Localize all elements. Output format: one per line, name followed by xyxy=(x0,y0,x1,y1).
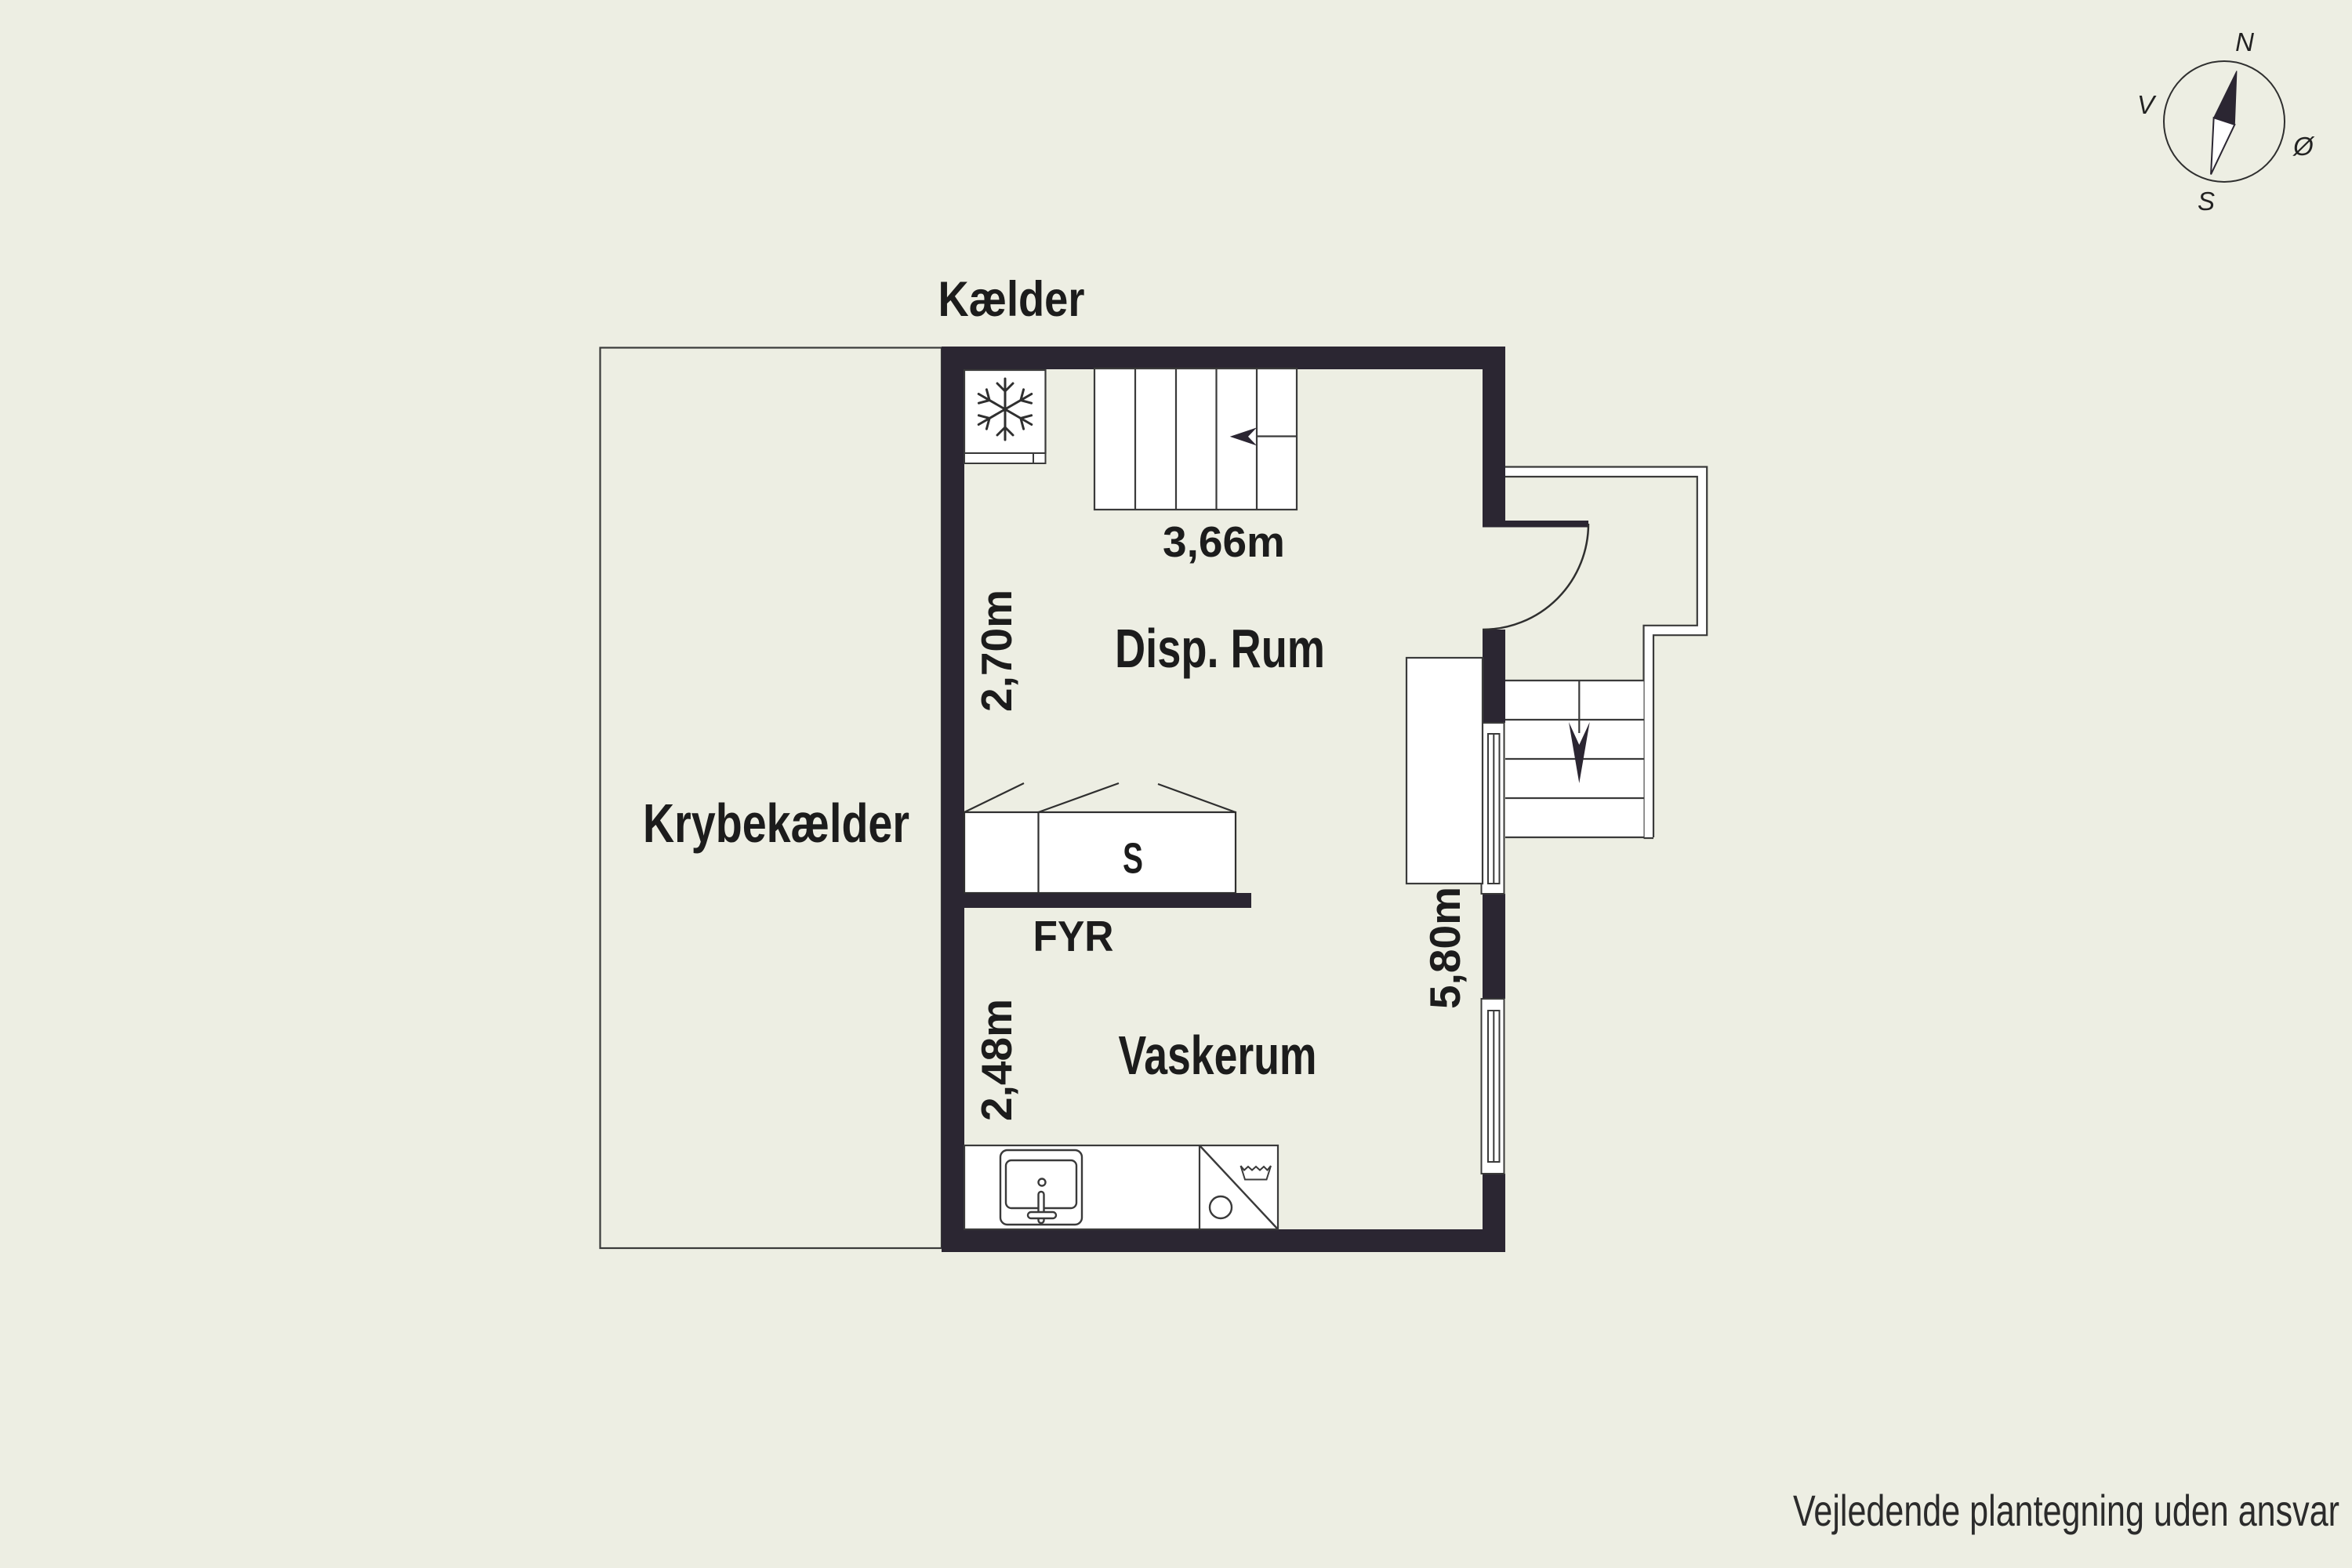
svg-text:3,66m: 3,66m xyxy=(1163,517,1285,566)
svg-text:S: S xyxy=(2198,187,2215,216)
svg-text:S: S xyxy=(1123,834,1143,883)
svg-text:Ø: Ø xyxy=(2292,132,2315,161)
svg-text:Kælder: Kælder xyxy=(938,272,1085,327)
svg-text:V: V xyxy=(2137,90,2157,119)
svg-text:5,80m: 5,80m xyxy=(1421,887,1469,1009)
svg-text:2,48m: 2,48m xyxy=(972,999,1021,1121)
svg-text:2,70m: 2,70m xyxy=(972,590,1021,712)
svg-text:N: N xyxy=(2235,27,2254,56)
svg-text:FYR: FYR xyxy=(1033,912,1114,960)
svg-text:Disp. Rum: Disp. Rum xyxy=(1115,618,1325,679)
svg-text:Vejledende plantegning uden an: Vejledende plantegning uden ansvar xyxy=(1793,1486,2339,1535)
svg-text:Krybekælder: Krybekælder xyxy=(643,793,909,854)
svg-text:Vaskerum: Vaskerum xyxy=(1119,1025,1317,1086)
